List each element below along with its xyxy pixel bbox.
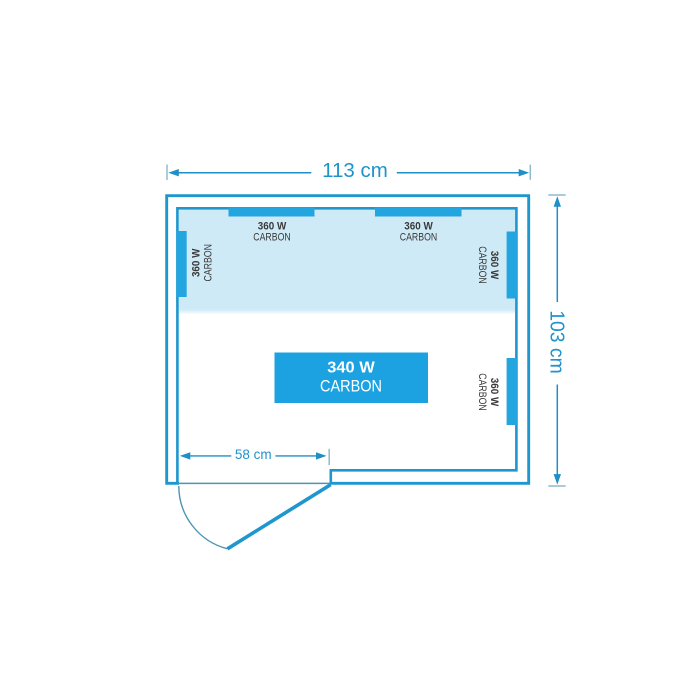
svg-text:CARBON: CARBON	[203, 244, 215, 282]
svg-text:CARBON: CARBON	[476, 373, 488, 411]
svg-text:360 W: 360 W	[191, 248, 203, 277]
svg-text:360 W: 360 W	[488, 378, 500, 407]
svg-text:103 cm: 103 cm	[546, 310, 569, 374]
svg-text:340 W: 340 W	[327, 360, 375, 377]
svg-text:CARBON: CARBON	[400, 231, 438, 243]
svg-text:58 cm: 58 cm	[235, 447, 272, 462]
svg-text:CARBON: CARBON	[320, 378, 382, 396]
svg-text:113 cm: 113 cm	[322, 159, 388, 182]
svg-text:CARBON: CARBON	[253, 231, 291, 243]
svg-text:CARBON: CARBON	[476, 246, 488, 284]
svg-text:360 W: 360 W	[488, 251, 500, 280]
